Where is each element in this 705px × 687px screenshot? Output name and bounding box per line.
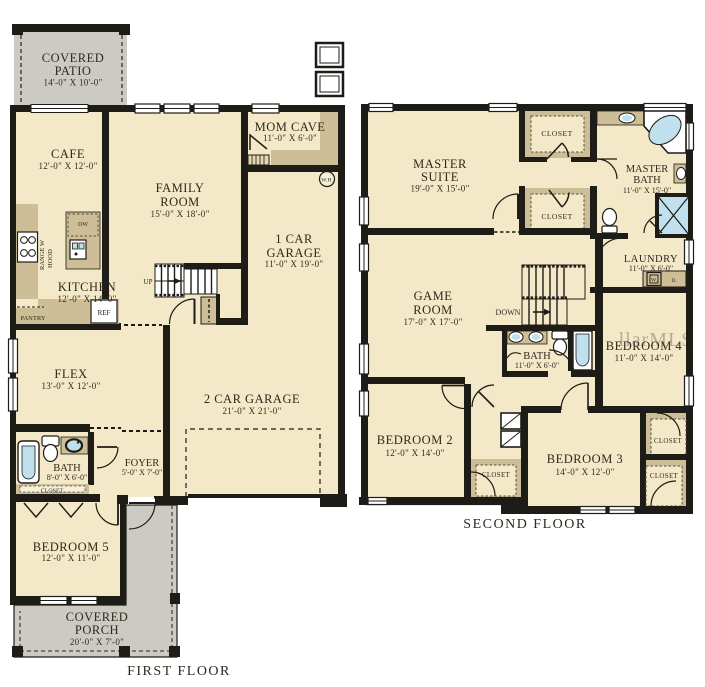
- svg-text:KITCHEN: KITCHEN: [58, 280, 116, 294]
- svg-text:GARAGE: GARAGE: [266, 246, 321, 260]
- svg-text:UP: UP: [144, 278, 153, 286]
- svg-text:12'-0" X 14'-0": 12'-0" X 14'-0": [385, 448, 444, 458]
- svg-text:DOWN: DOWN: [496, 308, 521, 317]
- svg-text:BEDROOM 2: BEDROOM 2: [377, 433, 453, 447]
- svg-text:11'-0" X 6'-0": 11'-0" X 6'-0": [263, 133, 317, 143]
- svg-text:12'-0" X 14'-0": 12'-0" X 14'-0": [57, 294, 116, 304]
- svg-text:COVERED: COVERED: [42, 51, 105, 65]
- svg-text:llarMLS: llarMLS: [619, 329, 694, 351]
- svg-text:15'-0" X 18'-0": 15'-0" X 18'-0": [150, 209, 209, 219]
- svg-text:BATH: BATH: [633, 175, 661, 186]
- svg-text:CLOSET: CLOSET: [41, 489, 64, 495]
- svg-text:17'-0" X 17'-0": 17'-0" X 17'-0": [403, 317, 462, 327]
- svg-text:W.: W.: [651, 278, 658, 284]
- svg-text:ROOM: ROOM: [413, 303, 453, 317]
- svg-text:12'-0" X 12'-0": 12'-0" X 12'-0": [38, 161, 97, 171]
- svg-text:11'-0" X 14'-0": 11'-0" X 14'-0": [615, 353, 674, 363]
- svg-text:BEDROOM 3: BEDROOM 3: [547, 452, 623, 466]
- svg-text:14'-0" X 12'-0": 14'-0" X 12'-0": [555, 467, 614, 477]
- svg-text:MOM CAVE: MOM CAVE: [255, 120, 326, 134]
- svg-text:ROOM: ROOM: [160, 195, 200, 209]
- svg-text:PANTRY: PANTRY: [20, 315, 45, 322]
- svg-text:13'-0" X 12'-0": 13'-0" X 12'-0": [41, 381, 100, 391]
- svg-text:W.H.: W.H.: [321, 178, 333, 184]
- svg-text:1 CAR: 1 CAR: [275, 232, 313, 246]
- svg-text:COVERED: COVERED: [66, 610, 129, 624]
- svg-text:GAME: GAME: [414, 289, 453, 303]
- svg-text:CAFE: CAFE: [51, 147, 85, 161]
- svg-text:CLOSET: CLOSET: [650, 472, 679, 480]
- svg-text:12'-0" X 11'-0": 12'-0" X 11'-0": [42, 553, 101, 563]
- svg-text:D.: D.: [671, 278, 677, 284]
- svg-text:SECOND FLOOR: SECOND FLOOR: [463, 517, 586, 532]
- svg-text:FIRST FLOOR: FIRST FLOOR: [127, 664, 231, 679]
- svg-text:2 CAR GARAGE: 2 CAR GARAGE: [204, 392, 300, 406]
- svg-text:REF: REF: [98, 309, 111, 317]
- svg-text:20'-0" X 7'-0": 20'-0" X 7'-0": [70, 637, 124, 647]
- svg-text:HOOD: HOOD: [47, 249, 54, 268]
- svg-text:DW: DW: [78, 222, 88, 228]
- svg-text:11'-0" X 6'-0": 11'-0" X 6'-0": [515, 361, 559, 370]
- svg-text:8'-0" X 6'-0": 8'-0" X 6'-0": [47, 473, 88, 482]
- svg-text:FAMILY: FAMILY: [156, 181, 205, 195]
- svg-text:CLOSET: CLOSET: [654, 437, 683, 445]
- svg-text:PORCH: PORCH: [75, 623, 119, 637]
- svg-text:19'-0" X 15'-0": 19'-0" X 15'-0": [410, 184, 469, 194]
- svg-text:MASTER: MASTER: [413, 157, 467, 171]
- svg-text:PATIO: PATIO: [55, 64, 92, 78]
- svg-text:MASTER: MASTER: [626, 164, 669, 175]
- svg-text:BEDROOM 5: BEDROOM 5: [33, 540, 109, 554]
- svg-text:FLEX: FLEX: [54, 367, 87, 381]
- svg-text:11'-0" X 19'-0": 11'-0" X 19'-0": [265, 259, 324, 269]
- svg-text:RANGE W: RANGE W: [39, 239, 46, 270]
- svg-text:SUITE: SUITE: [421, 170, 459, 184]
- svg-text:21'-0" X 21'-0": 21'-0" X 21'-0": [222, 406, 281, 416]
- svg-text:14'-0" X 10'-0": 14'-0" X 10'-0": [43, 78, 102, 88]
- svg-text:CLOSET: CLOSET: [541, 129, 572, 138]
- svg-text:CLOSET: CLOSET: [541, 212, 572, 221]
- svg-text:5'-0" X 7'-0": 5'-0" X 7'-0": [122, 468, 163, 477]
